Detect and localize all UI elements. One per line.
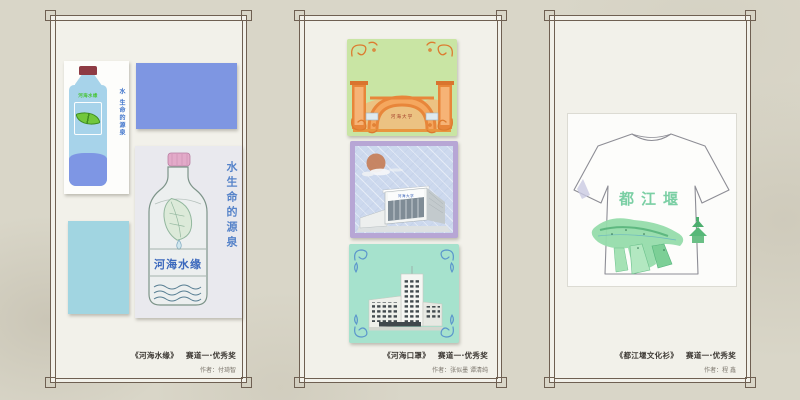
gate-sign-text: 河海大学 (391, 113, 413, 120)
leaf-icon (76, 109, 101, 129)
mask-card-gym: 河海大学 (350, 141, 458, 238)
tshirt-mockup-card: 都江堰 (568, 114, 736, 286)
hand-drawn-bottle-card: 河海水缘 水生命的源泉 (135, 146, 242, 318)
frame-corner-knot (544, 377, 555, 388)
award-label: 赛道一·优秀奖 (438, 350, 488, 361)
frame-corner-knot (45, 377, 56, 388)
bottle-cap (79, 66, 97, 75)
frame-corner-knot (496, 10, 507, 21)
small-bottle-mockup-card: 河海水缘 水 生命的源泉 (64, 61, 129, 194)
author-label: 作者：张似墨 谭清纯 (383, 365, 488, 374)
frame-corner-knot (241, 10, 252, 21)
mask-card-tower (349, 244, 459, 343)
frame-corner-knot (45, 10, 56, 21)
gate-illustration: 河海大学 (347, 39, 457, 136)
bottle-brand-handwriting: 河海水缘 (154, 257, 202, 271)
panel-water-bottle: 河海水缘 水 生命的源泉 河海水缘 水生命的源泉 (50, 15, 247, 383)
bottle-water-fill (69, 153, 107, 186)
mask-card-gate: 河海大学 (347, 39, 457, 136)
wave-pattern-background: 河海大学 (355, 146, 453, 233)
frame-corner-knot (745, 10, 756, 21)
artwork-title: 《河海水缘》 (131, 350, 178, 361)
bottle-brand-text: 河海水缘 (69, 93, 107, 99)
caption-water-bottle: 《河海水缘》 赛道一·优秀奖 作者：付琦智 (131, 350, 236, 374)
gym-sign-text: 河海大学 (398, 193, 414, 198)
bottle-neck (75, 75, 102, 85)
frame-corner-knot (496, 377, 507, 388)
bottle-slogan-handwriting: 水生命的源泉 (223, 161, 239, 251)
bottle-label-box (74, 102, 102, 135)
frame-corner-knot (745, 377, 756, 388)
color-swatch-cornflower (136, 63, 237, 129)
color-swatch-cyan (68, 221, 129, 314)
artwork-title: 《河海口罩》 (383, 350, 430, 361)
frame-corner-knot (294, 10, 305, 21)
caption-tshirt: 《都江堰文化衫》 赛道一·优秀奖 作者：程 鑫 (616, 350, 736, 374)
author-label: 作者：程 鑫 (616, 365, 736, 374)
small-bottle-illustration: 河海水缘 (69, 66, 107, 186)
frame-corner-knot (544, 10, 555, 21)
bottle-body: 河海水缘 (69, 85, 107, 186)
frame-corner-knot (294, 377, 305, 388)
frame-corner-knot (241, 377, 252, 388)
bottle-cap (168, 153, 190, 166)
award-label: 赛道一·优秀奖 (186, 350, 236, 361)
artwork-title: 《都江堰文化衫》 (616, 350, 678, 361)
panel-masks: 河海大学 河海大学 (299, 15, 502, 383)
panel-tshirt: 都江堰 《都江堰文化衫》 (549, 15, 751, 383)
award-label: 赛道一·优秀奖 (686, 350, 736, 361)
shirt-print-text: 都江堰 (618, 190, 685, 208)
bottle-slogan-vertical: 水 生命的源泉 (117, 88, 126, 137)
caption-masks: 《河海口罩》 赛道一·优秀奖 作者：张似墨 谭清纯 (383, 350, 488, 374)
tshirt-illustration: 都江堰 (568, 114, 736, 286)
gym-illustration: 河海大学 (355, 146, 453, 233)
author-label: 作者：付琦智 (131, 365, 236, 374)
tower-illustration (349, 244, 459, 343)
